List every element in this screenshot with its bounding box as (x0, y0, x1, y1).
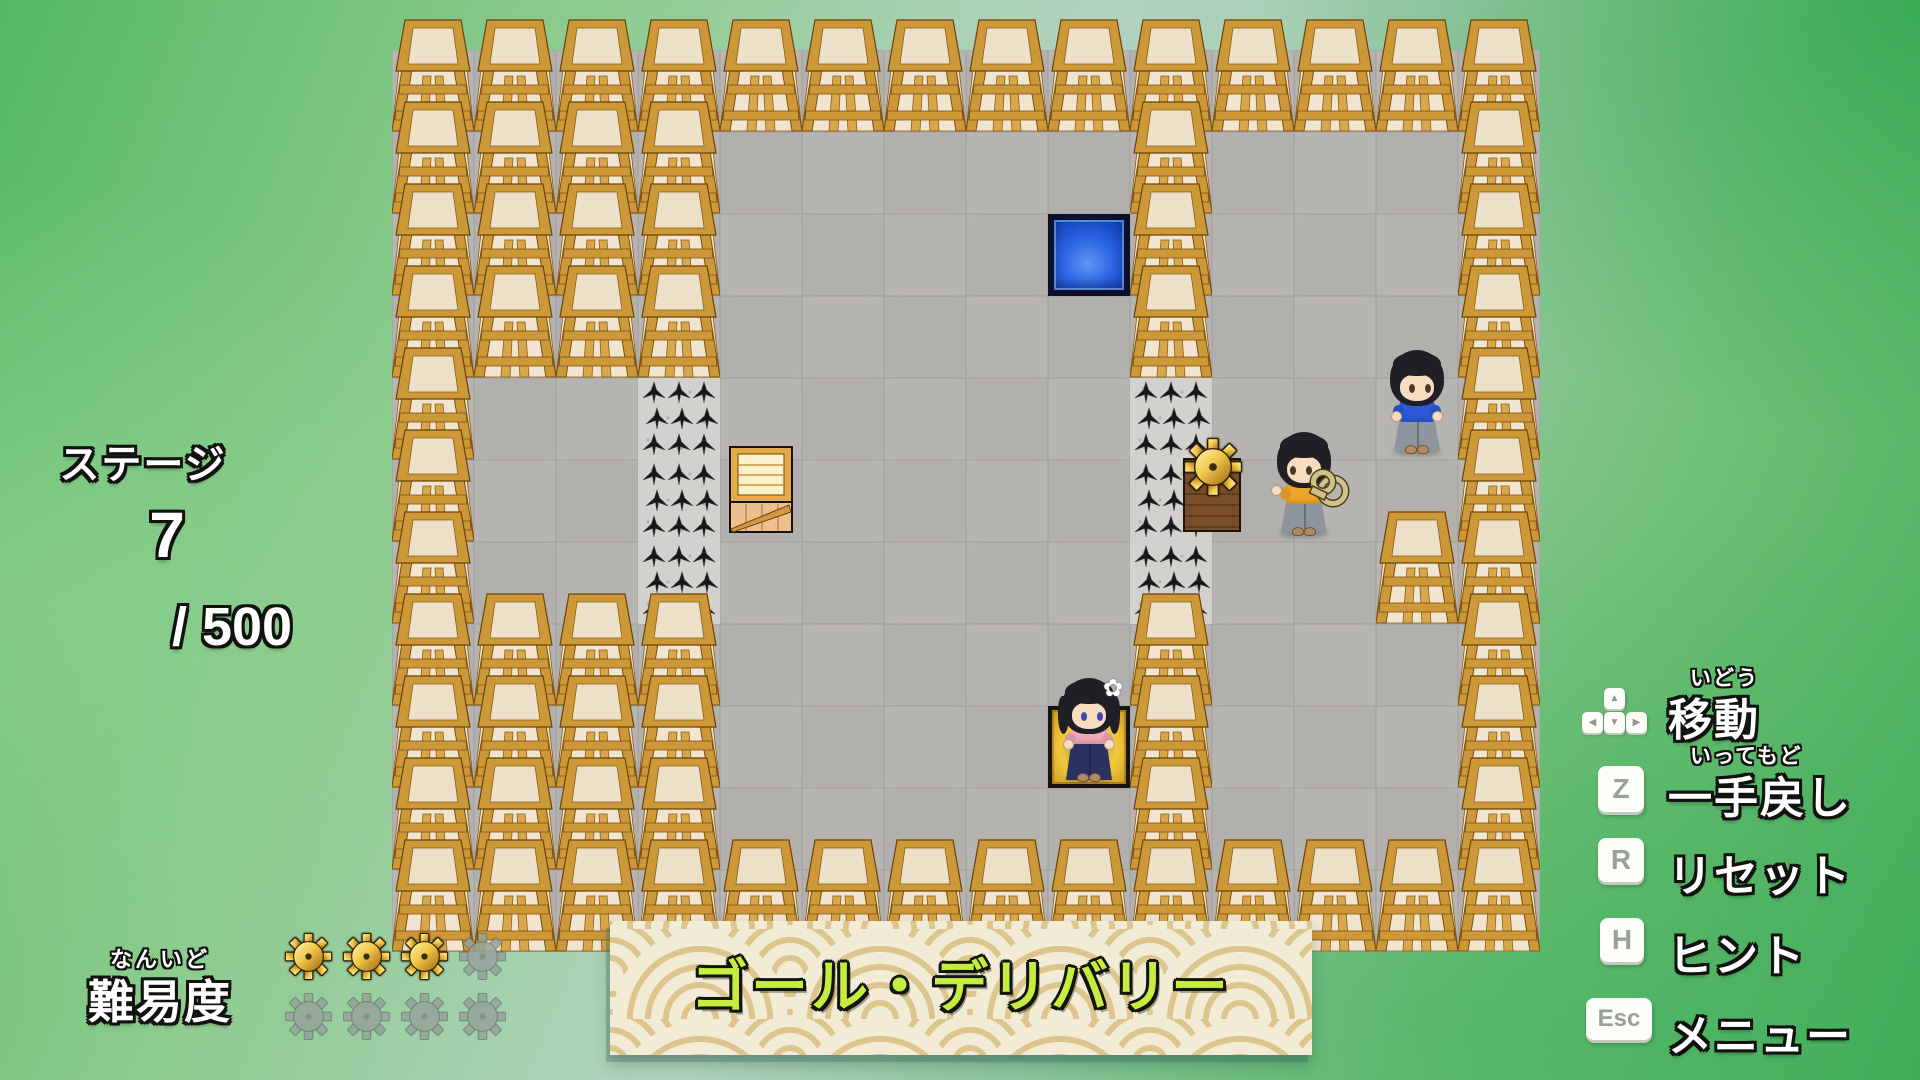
stone-floor-tile (1212, 542, 1294, 624)
blue-goal-tile (1048, 214, 1130, 296)
arrow-up-key-icon: ▲ (1604, 688, 1625, 709)
stone-floor-tile (474, 460, 556, 542)
difficulty-gear-empty-icon (343, 993, 390, 1045)
stone-floor-tile (966, 132, 1048, 214)
stone-floor-tile (966, 214, 1048, 296)
stone-floor-tile (1294, 706, 1376, 788)
stone-floor-tile (802, 542, 884, 624)
difficulty-gear-filled-icon (285, 933, 332, 985)
stage-number: 7 (30, 498, 304, 572)
stone-floor-tile (720, 296, 802, 378)
difficulty-label: 難易度 (60, 966, 260, 1032)
wall-block (1376, 19, 1458, 132)
reset-label: リセット (1668, 840, 1852, 904)
stone-floor-tile (884, 378, 966, 460)
wall-block (638, 265, 720, 378)
wall-block (1376, 839, 1458, 952)
arrow-right-key-icon: ▶ (1626, 712, 1647, 733)
stone-floor-tile (720, 132, 802, 214)
stone-floor-tile (1048, 378, 1130, 460)
stone-floor-tile (720, 624, 802, 706)
difficulty-gear-empty-icon (285, 993, 332, 1045)
stone-floor-tile (966, 378, 1048, 460)
stone-floor-tile (1294, 624, 1376, 706)
stone-floor-tile (1212, 706, 1294, 788)
difficulty-gear-empty-icon (401, 993, 448, 1045)
spike-tile (638, 378, 720, 460)
move-label: 移動 (1668, 684, 1760, 748)
wall-block (720, 19, 802, 132)
wall-block (1458, 839, 1540, 952)
wall-block (1294, 19, 1376, 132)
menu-label: メニュー (1668, 1000, 1852, 1064)
character-boy-in-blue (1385, 350, 1449, 456)
stone-floor-tile (802, 378, 884, 460)
difficulty-gears-row-1 (285, 933, 506, 985)
stone-floor-tile (884, 460, 966, 542)
wall-block (1212, 19, 1294, 132)
arrow-down-key-icon: ▼ (1604, 712, 1625, 733)
stone-floor-tile (884, 706, 966, 788)
wall-block (802, 19, 884, 132)
stone-floor-tile (1048, 460, 1130, 542)
stone-floor-tile (1294, 542, 1376, 624)
character-head: ✿ (1061, 678, 1117, 736)
stone-floor-tile (474, 378, 556, 460)
stage-label: ステージ (30, 432, 256, 490)
stone-floor-tile (802, 296, 884, 378)
reset-key-icon: R (1598, 838, 1644, 882)
stone-floor-tile (802, 214, 884, 296)
stone-floor-tile (884, 214, 966, 296)
stone-floor-tile (966, 542, 1048, 624)
stone-floor-tile (1376, 624, 1458, 706)
stone-floor-tile (1048, 296, 1130, 378)
stone-floor-tile (1048, 132, 1130, 214)
stone-floor-tile (884, 542, 966, 624)
wall-block (1130, 265, 1212, 378)
wall-block (1048, 19, 1130, 132)
undo-key-icon: Z (1598, 766, 1644, 812)
difficulty-gear-filled-icon (401, 933, 448, 985)
character-boy-with-windup-key (1272, 432, 1336, 538)
stone-floor-tile (966, 296, 1048, 378)
character-head (1389, 350, 1445, 408)
arrow-keys-icon: ▲ ◀ ▼ ▶ (1582, 688, 1652, 736)
stone-floor-tile (720, 214, 802, 296)
difficulty-gear-empty-icon (459, 993, 506, 1045)
undo-label: 一手戻し (1668, 762, 1852, 826)
stone-floor-tile (1212, 214, 1294, 296)
stone-floor-tile (1376, 132, 1458, 214)
wall-block (474, 265, 556, 378)
level-title-banner: ゴール・デリバリー (610, 921, 1312, 1055)
level-title: ゴール・デリバリー (610, 921, 1312, 1053)
hint-label: ヒント (1668, 920, 1806, 984)
stone-floor-tile (556, 460, 638, 542)
arrow-left-key-icon: ◀ (1582, 712, 1603, 733)
gear-on-pedestal (1184, 438, 1242, 501)
stone-floor-tile (884, 132, 966, 214)
wall-block (884, 19, 966, 132)
stone-floor-tile (966, 706, 1048, 788)
stone-floor-tile (802, 624, 884, 706)
wall-block (1376, 511, 1458, 624)
stone-floor-tile (720, 542, 802, 624)
wall-block (966, 19, 1048, 132)
stone-floor-tile (966, 624, 1048, 706)
stone-floor-tile (1212, 624, 1294, 706)
stone-floor-tile (1376, 706, 1458, 788)
flower-icon: ✿ (1103, 674, 1123, 703)
difficulty-gear-filled-icon (343, 933, 390, 985)
difficulty-gear-empty-icon (459, 933, 506, 985)
wooden-crate (729, 446, 793, 539)
stone-floor-tile (802, 460, 884, 542)
stone-floor-tile (1294, 214, 1376, 296)
stone-floor-tile (802, 706, 884, 788)
menu-key-icon: Esc (1586, 998, 1652, 1040)
hint-key-icon: H (1600, 918, 1644, 962)
stone-floor-tile (884, 296, 966, 378)
stone-floor-tile (1212, 132, 1294, 214)
stage-total: / 500 (92, 596, 372, 658)
stone-floor-tile (1294, 132, 1376, 214)
stone-floor-tile (1212, 296, 1294, 378)
wall-block (556, 265, 638, 378)
stone-floor-tile (802, 132, 884, 214)
stone-floor-tile (1048, 542, 1130, 624)
stone-floor-tile (884, 624, 966, 706)
stone-floor-tile (1376, 214, 1458, 296)
stone-floor-tile (1294, 296, 1376, 378)
difficulty-gears-row-2 (285, 993, 506, 1045)
stone-floor-tile (966, 460, 1048, 542)
stone-floor-tile (720, 706, 802, 788)
character-flower-girl: ✿ (1057, 678, 1121, 784)
spike-tile (638, 460, 720, 542)
stone-floor-tile (556, 378, 638, 460)
